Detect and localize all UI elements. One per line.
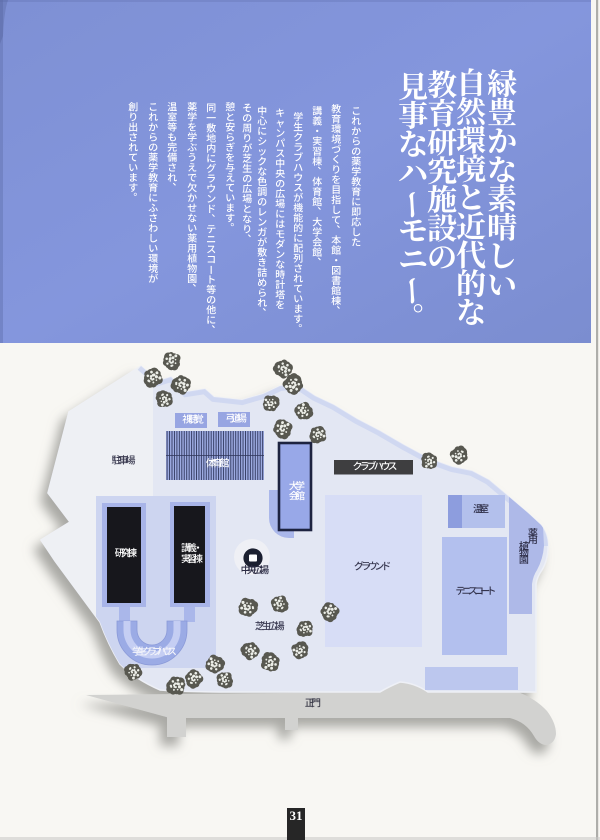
svg-text:31: 31	[290, 808, 303, 823]
